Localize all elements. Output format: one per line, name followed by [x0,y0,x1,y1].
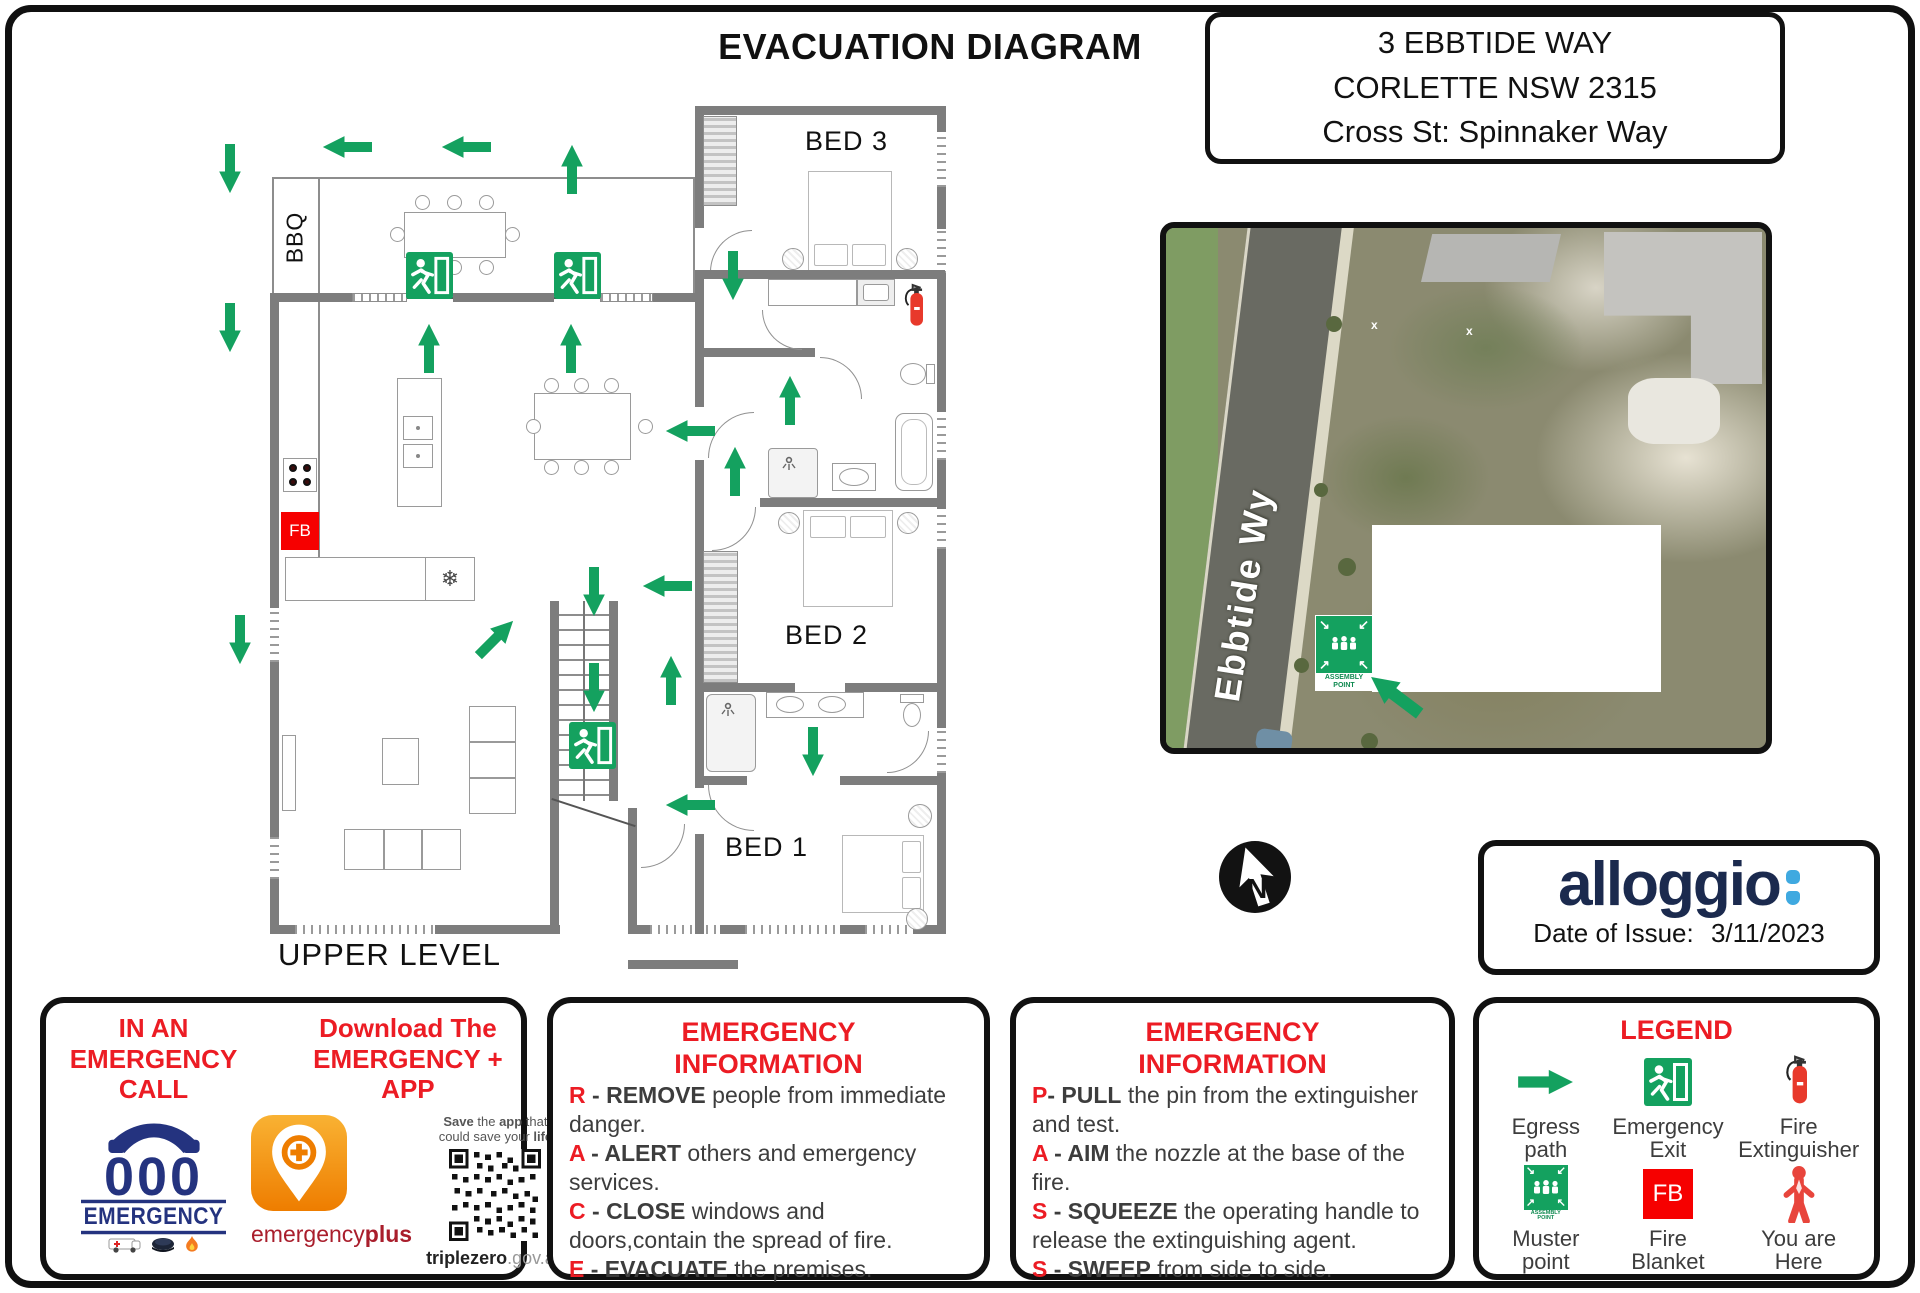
emergency-information-pass-box: EMERGENCY INFORMATION P- PULL the pin fr… [1010,997,1455,1280]
basin [818,696,846,713]
bed2-door-arc [712,507,756,551]
chair [574,460,589,475]
wall-stairs [609,601,618,801]
assembly-point-icon: ↘ ↙ ↗ ↖ [1316,616,1372,673]
wall-bed1-top [840,776,945,785]
legend-item-emergency-exit: Emergency Exit [1603,1053,1734,1161]
pass-item: A - AIM the nozzle at the base of the fi… [1032,1139,1433,1197]
north-label: N [1247,873,1267,905]
emergency-exit-icon [1644,1058,1692,1106]
egress-arrow-icon [218,303,242,353]
wall-corridor [695,834,704,934]
wall-segment [653,293,695,302]
map-bush [1294,658,1309,673]
legend-box: LEGEND Egress path Emergency Exit Fire E… [1473,997,1880,1280]
emergency-services-icons [56,1236,251,1254]
address-box: 3 EBBTIDE WAY CORLETTE NSW 2315 Cross St… [1205,12,1785,164]
site-map: x x Ebbtide Wy ↘ ↙ ↗ ↖ ASSEMBLY POINT [1160,222,1772,754]
sofa-chaise [469,706,516,814]
egress-arrow-icon [582,663,606,713]
north-compass: N [1211,833,1299,921]
egress-arrow-icon [470,612,522,664]
wall-segment [453,293,554,302]
fire-blanket-icon: FB [1643,1169,1693,1219]
map-car [1255,728,1294,754]
chair [526,419,541,434]
chair [479,195,494,210]
sofa [344,829,461,870]
chair [544,378,559,393]
qr-domain: triplezero [426,1248,507,1268]
laundry-door-arc [762,310,802,350]
pillow [852,244,886,266]
window [745,925,840,934]
toilet-bowl [903,703,921,727]
wardrobe [703,116,737,206]
app-wordmark-bold: plus [365,1221,412,1247]
map-roof [1421,234,1561,282]
egress-arrow-icon [322,135,372,159]
chair [574,378,589,393]
chair [604,378,619,393]
legend-item-fire-blanket: FB Fire Blanket [1603,1165,1734,1273]
wall-stairs [550,601,559,934]
pass-instructions: P- PULL the pin from the extinguisher an… [1016,1081,1449,1284]
egress-arrow-icon [560,144,584,194]
dining-table [534,393,631,460]
app-heading: Download The EMERGENCY + APP [293,1013,523,1105]
egress-arrow-icon [642,574,692,598]
toilet-tank [900,694,924,703]
window [270,608,279,662]
pass-heading-line1: EMERGENCY [1016,1017,1449,1049]
pillow [902,841,921,873]
map-blank-building [1372,525,1661,692]
race-instructions: R - REMOVE people from immediate danger.… [553,1081,984,1284]
map-bush [1361,733,1378,750]
pass-item: S - SWEEP from side to side. [1032,1255,1433,1284]
wall-porch [628,808,637,934]
egress-arrow-icon [441,135,491,159]
egress-arrow-icon [801,727,825,777]
page-title: EVACUATION DIAGRAM [550,26,1310,68]
wall-bed2-top [760,498,945,507]
legend-item-muster-point: ↘ ↙ ↗ ↖ ASSEMBLY POINT Muster point [1489,1165,1603,1273]
wardrobe [703,551,738,683]
issuer-box: alloggio Date of Issue: 3/11/2023 [1478,840,1880,975]
alloggio-logo: alloggio [1558,854,1780,916]
pass-item: P- PULL the pin from the extinguisher an… [1032,1081,1433,1139]
window [650,925,720,934]
pillow [814,244,848,266]
bbq-label: BBQ [282,212,309,264]
you-are-here-icon [1778,1165,1820,1223]
emergency-exit-sign [569,722,616,769]
muster-point-icon: ↘ ↙ ↗ ↖ ASSEMBLY POINT [1524,1165,1568,1223]
shower-head-icon [778,454,800,474]
toilet-tank [926,364,935,384]
map-roof [1604,232,1762,384]
island-sink [403,416,433,440]
cooktop [283,458,317,492]
bedside-table [906,908,928,930]
call-heading: IN AN EMERGENCY CALL [69,1013,239,1105]
race-item: A - ALERT others and emergency services. [569,1139,968,1197]
floor-plan: BBQ BED 3 [200,82,975,987]
window [937,412,946,460]
emergency-exit-sign [554,252,601,299]
egress-arrow-icon [721,251,745,301]
map-bush [1338,558,1356,576]
egress-arrow-icon [723,446,747,496]
egress-arrow-icon [665,419,715,443]
bbq-area: BBQ [272,177,320,298]
wall-segment [270,293,352,302]
fridge: ❄ [425,557,475,601]
window [937,132,946,187]
race-item: C - CLOSE windows and doors,contain the … [569,1197,968,1255]
tv [282,735,296,811]
emergency-call-box: IN AN EMERGENCY CALL 000 EMERGENCY Downl… [40,997,527,1280]
pillow [850,516,886,538]
chair [604,460,619,475]
wall-corridor [695,270,704,407]
chair [447,195,462,210]
egress-arrow-icon [559,323,583,373]
egress-arrow-icon [778,375,802,425]
address-line3: Cross St: Spinnaker Way [1210,110,1780,155]
window [937,229,946,273]
egress-arrow-icon [228,615,252,665]
wall-bed1-top [695,776,747,785]
legend-heading: LEGEND [1479,1015,1874,1047]
window [270,837,279,879]
muster-point-sign: ↘ ↙ ↗ ↖ ASSEMBLY POINT [1316,616,1372,690]
chair [390,227,405,242]
island-sink [403,444,433,468]
bedside-table [778,512,800,534]
race-heading-line1: EMERGENCY [553,1017,984,1049]
wall-ensuite-top [695,683,795,692]
map-marker-x: x [1371,318,1378,332]
wall-porch [628,960,738,969]
bedside-table [908,804,932,828]
laundry-bench [768,279,857,306]
egress-arrow-icon [218,144,242,194]
bedside-table [782,248,804,270]
wc-door-arc [820,357,862,399]
fire-blanket-marker: FB [281,512,319,550]
window [937,728,946,773]
phone-number: 000 [56,1153,251,1202]
ambulance-icon [108,1236,142,1254]
pillow [810,516,846,538]
pillow [902,877,921,909]
phone-caption: EMERGENCY [81,1199,227,1234]
kitchen-island [397,378,442,507]
bed2-label: BED 2 [785,620,868,651]
race-item: E - EVACUATE the premises. [569,1255,968,1284]
address-line2: CORLETTE NSW 2315 [1210,66,1780,111]
date-of-issue-label: Date of Issue: [1533,918,1693,948]
ensuite-door-arc [887,731,929,773]
entry-door-arc [641,824,685,868]
map-bush [1314,483,1328,497]
emergency-plus-app-icon [251,1115,347,1211]
chair [415,195,430,210]
egress-arrow-icon [659,655,683,705]
basin [839,468,869,486]
fire-blanket-label: FB [289,521,311,541]
alloggio-colon-icon [1786,870,1800,905]
qr-code [449,1149,541,1241]
upper-level-label: UPPER LEVEL [278,937,501,973]
fire-extinguisher-icon [902,282,930,332]
chair [505,227,520,242]
qr-caption: Save the app that could save your life [426,1115,565,1145]
bed3-label: BED 3 [805,126,888,157]
window [295,925,435,934]
fire-extinguisher-icon [1783,1054,1815,1110]
emergency-information-race-box: EMERGENCY INFORMATION R - REMOVE people … [547,997,990,1280]
chair [544,460,559,475]
window [937,509,946,549]
egress-arrow-icon [1518,1069,1574,1095]
pass-item: S - SQUEEZE the operating handle to rele… [1032,1197,1433,1255]
basin [776,696,804,713]
legend-item-fire-extinguisher: Fire Extinguisher [1733,1053,1864,1161]
fire-flame-icon [184,1236,200,1254]
sliding-door [352,293,407,302]
stair-line [551,798,635,827]
chair [638,419,653,434]
bathtub-inner [901,419,927,485]
legend-item-egress-path: Egress path [1489,1053,1603,1161]
coffee-table [382,738,419,785]
egress-arrow-icon [582,567,606,617]
pass-heading-line2: INFORMATION [1016,1049,1449,1081]
map-bush [1326,316,1342,332]
police-hat-icon [150,1237,176,1253]
app-wordmark: emergency [251,1221,365,1247]
legend-item-you-are-here: You are Here [1733,1165,1864,1273]
laundry-sink-bowl [863,284,889,301]
egress-arrow-icon [665,793,715,817]
map-driveway [1628,378,1720,444]
shower-head-icon [717,700,739,720]
emergency-exit-sign [406,252,453,299]
address-line1: 3 EBBTIDE WAY [1210,21,1780,66]
wall-ensuite-top [845,683,945,692]
map-marker-x: x [1466,324,1473,338]
wall-top-bed3-block [695,106,945,115]
date-of-issue-value: 3/11/2023 [1711,918,1825,948]
chair [479,260,494,275]
toilet-bowl [900,363,926,385]
triple-zero-logo: 000 EMERGENCY [56,1115,251,1254]
race-heading-line2: INFORMATION [553,1049,984,1081]
bedside-table [897,512,919,534]
window [865,925,913,934]
bed1-label: BED 1 [725,832,808,863]
egress-arrow-icon [417,323,441,373]
sliding-door [600,293,653,302]
bedside-table [896,248,918,270]
race-item: R - REMOVE people from immediate danger. [569,1081,968,1139]
